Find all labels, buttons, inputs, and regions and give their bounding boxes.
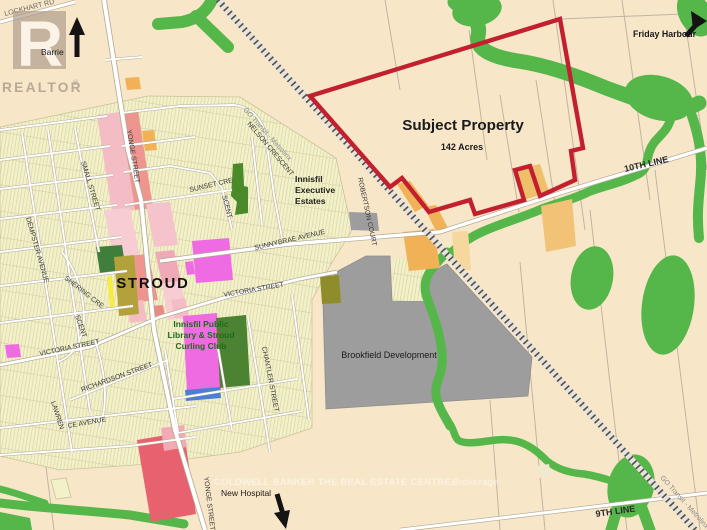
- svg-text:®: ®: [73, 79, 79, 87]
- svg-text:Brookfield Development: Brookfield Development: [341, 350, 437, 360]
- svg-text:STROUD: STROUD: [116, 276, 189, 292]
- svg-text:Library & Stroud: Library & Stroud: [167, 330, 234, 340]
- svg-text:REALTOR: REALTOR: [2, 80, 83, 95]
- svg-text:Barrie: Barrie: [41, 47, 64, 57]
- svg-text:Brokerage: Brokerage: [452, 477, 498, 487]
- svg-text:Curling Club: Curling Club: [176, 341, 227, 351]
- svg-text:142 Acres: 142 Acres: [441, 142, 483, 152]
- svg-text:Innisfil Public: Innisfil Public: [173, 319, 229, 329]
- svg-text:COLDWELL BANKER THE REAL ESTAT: COLDWELL BANKER THE REAL ESTATE CENTRE.: [214, 477, 454, 488]
- svg-text:R: R: [17, 8, 63, 80]
- svg-text:Executive: Executive: [295, 185, 335, 195]
- svg-text:New Hospital: New Hospital: [221, 488, 271, 498]
- svg-text:Estates: Estates: [295, 196, 326, 206]
- svg-text:Subject Property: Subject Property: [402, 117, 524, 134]
- svg-text:Innisfil: Innisfil: [295, 174, 323, 184]
